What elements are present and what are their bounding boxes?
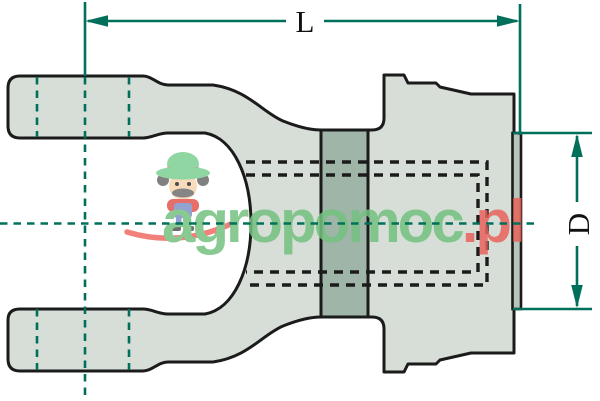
- dimension-d-label: D: [561, 213, 596, 235]
- dimension-l-label: L: [296, 4, 315, 39]
- dimension-d-arrow-down: [571, 285, 583, 308]
- dimension-d-arrow-up: [571, 134, 583, 157]
- watermark-text: agropomoc.pl: [162, 188, 523, 255]
- yoke-drawing-svg: agropomoc.pl L D: [0, 0, 600, 401]
- dimension-l-arrow-right: [497, 15, 520, 27]
- mascot-eye: [187, 182, 191, 186]
- product-drawing: agropomoc.pl L D: [0, 0, 600, 401]
- watermark-text-red: .pl: [462, 188, 523, 255]
- dimension-l-arrow-left: [85, 15, 108, 27]
- mascot-hat-brim: [156, 167, 210, 180]
- watermark-text-green: agropomoc: [162, 188, 463, 255]
- mascot-eye: [175, 182, 179, 186]
